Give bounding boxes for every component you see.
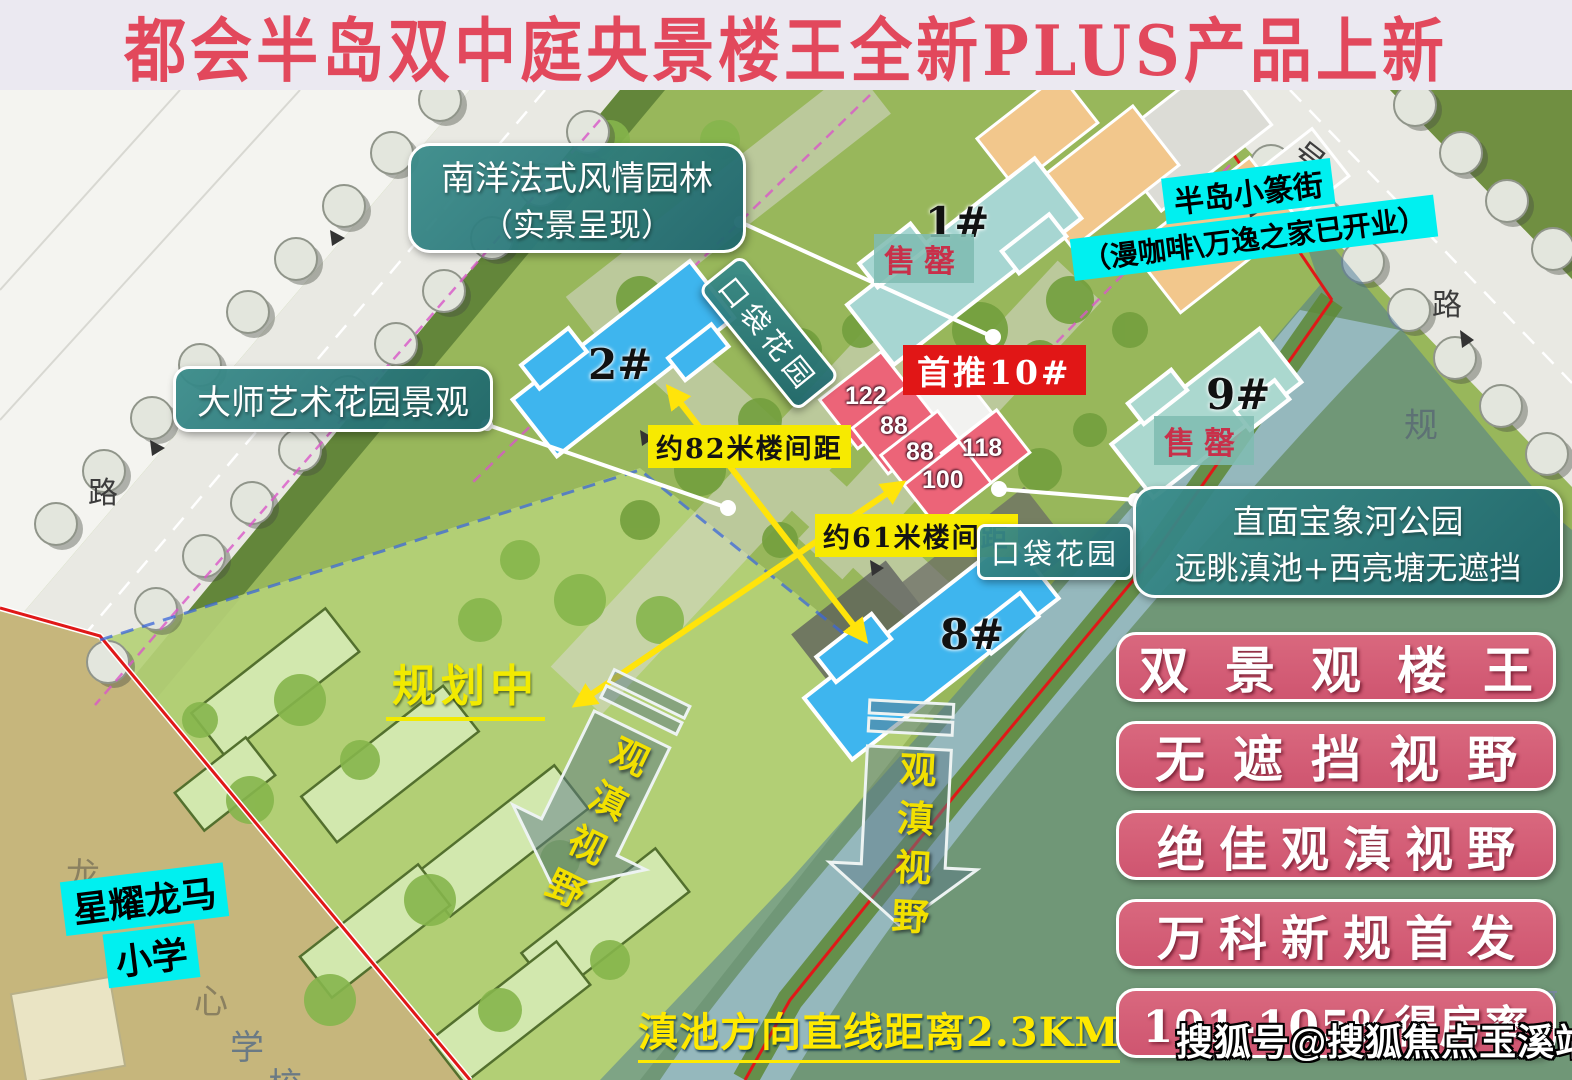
callout-pocket-garden-2: 口袋花园 [977, 524, 1133, 580]
school-bg-char-1: 心 [194, 974, 228, 1023]
unit-area-118: 118 [962, 434, 1002, 463]
planning-label: 规划中 [386, 650, 545, 721]
callout-river-park-line1: 直面宝象河公园 [1136, 495, 1560, 543]
road-char-left: 路 [88, 468, 118, 512]
plan-char: 规 [1404, 398, 1438, 447]
unit-area-122: 122 [845, 382, 887, 411]
callout-garden-style-line2: （实景呈现） [411, 200, 743, 246]
road-char-right: 路 [1432, 280, 1462, 324]
callout-river-park-line2: 远眺滇池+西亮塘无遮挡 [1136, 543, 1560, 589]
watermark: 搜狐号@搜狐焦点玉溪站 [1176, 1012, 1572, 1066]
building-9-sold-badge: 售罄 [1154, 416, 1254, 465]
unit-area-88a: 88 [880, 412, 908, 441]
poster-root: 都会半岛双中庭央景楼王全新PLUS产品上新 南洋法式风情园林 （实景呈现） 半岛… [0, 0, 1572, 1080]
selling-point-2: 无遮挡视野 [1116, 721, 1556, 791]
callout-master-garden-text: 大师艺术花园景观 [176, 375, 490, 424]
building-8-label: 8# [940, 610, 1004, 659]
callout-master-garden: 大师艺术花园景观 [173, 366, 493, 432]
building-9-label: 9# [1206, 370, 1270, 419]
selling-points: 双景观楼王 无遮挡视野 绝佳观滇视野 万科新规首发 101-105%得房率 [1116, 632, 1556, 1077]
building-2-label: 2# [588, 340, 652, 389]
spacing-82m-tag: 约82米楼间距 [648, 425, 851, 468]
first-launch-badge: 首推10# [903, 345, 1086, 395]
selling-point-3: 绝佳观滇视野 [1116, 810, 1556, 880]
selling-point-4: 万科新规首发 [1116, 899, 1556, 969]
distance-label: 滇池方向直线距离2.3KM [638, 1000, 1120, 1063]
callout-garden-style-line1: 南洋法式风情园林 [411, 151, 743, 200]
title-banner: 都会半岛双中庭央景楼王全新PLUS产品上新 [0, 0, 1572, 90]
school-bg-char-3: 校 [268, 1058, 302, 1080]
selling-point-1: 双景观楼王 [1116, 632, 1556, 702]
view-corridor-label-right: 观滇视野 [879, 749, 943, 948]
unit-area-100: 100 [922, 466, 964, 495]
school-label: 星耀龙马 小学 [52, 861, 244, 993]
school-label-line2: 小学 [103, 923, 201, 988]
unit-area-88b: 88 [906, 438, 934, 467]
building-1-sold-badge: 售罄 [874, 234, 974, 283]
page-title: 都会半岛双中庭央景楼王全新PLUS产品上新 [124, 0, 1448, 95]
callout-garden-style: 南洋法式风情园林 （实景呈现） [408, 143, 746, 253]
callout-river-park: 直面宝象河公园 远眺滇池+西亮塘无遮挡 [1133, 486, 1563, 598]
school-bg-char-2: 学 [230, 1020, 264, 1069]
